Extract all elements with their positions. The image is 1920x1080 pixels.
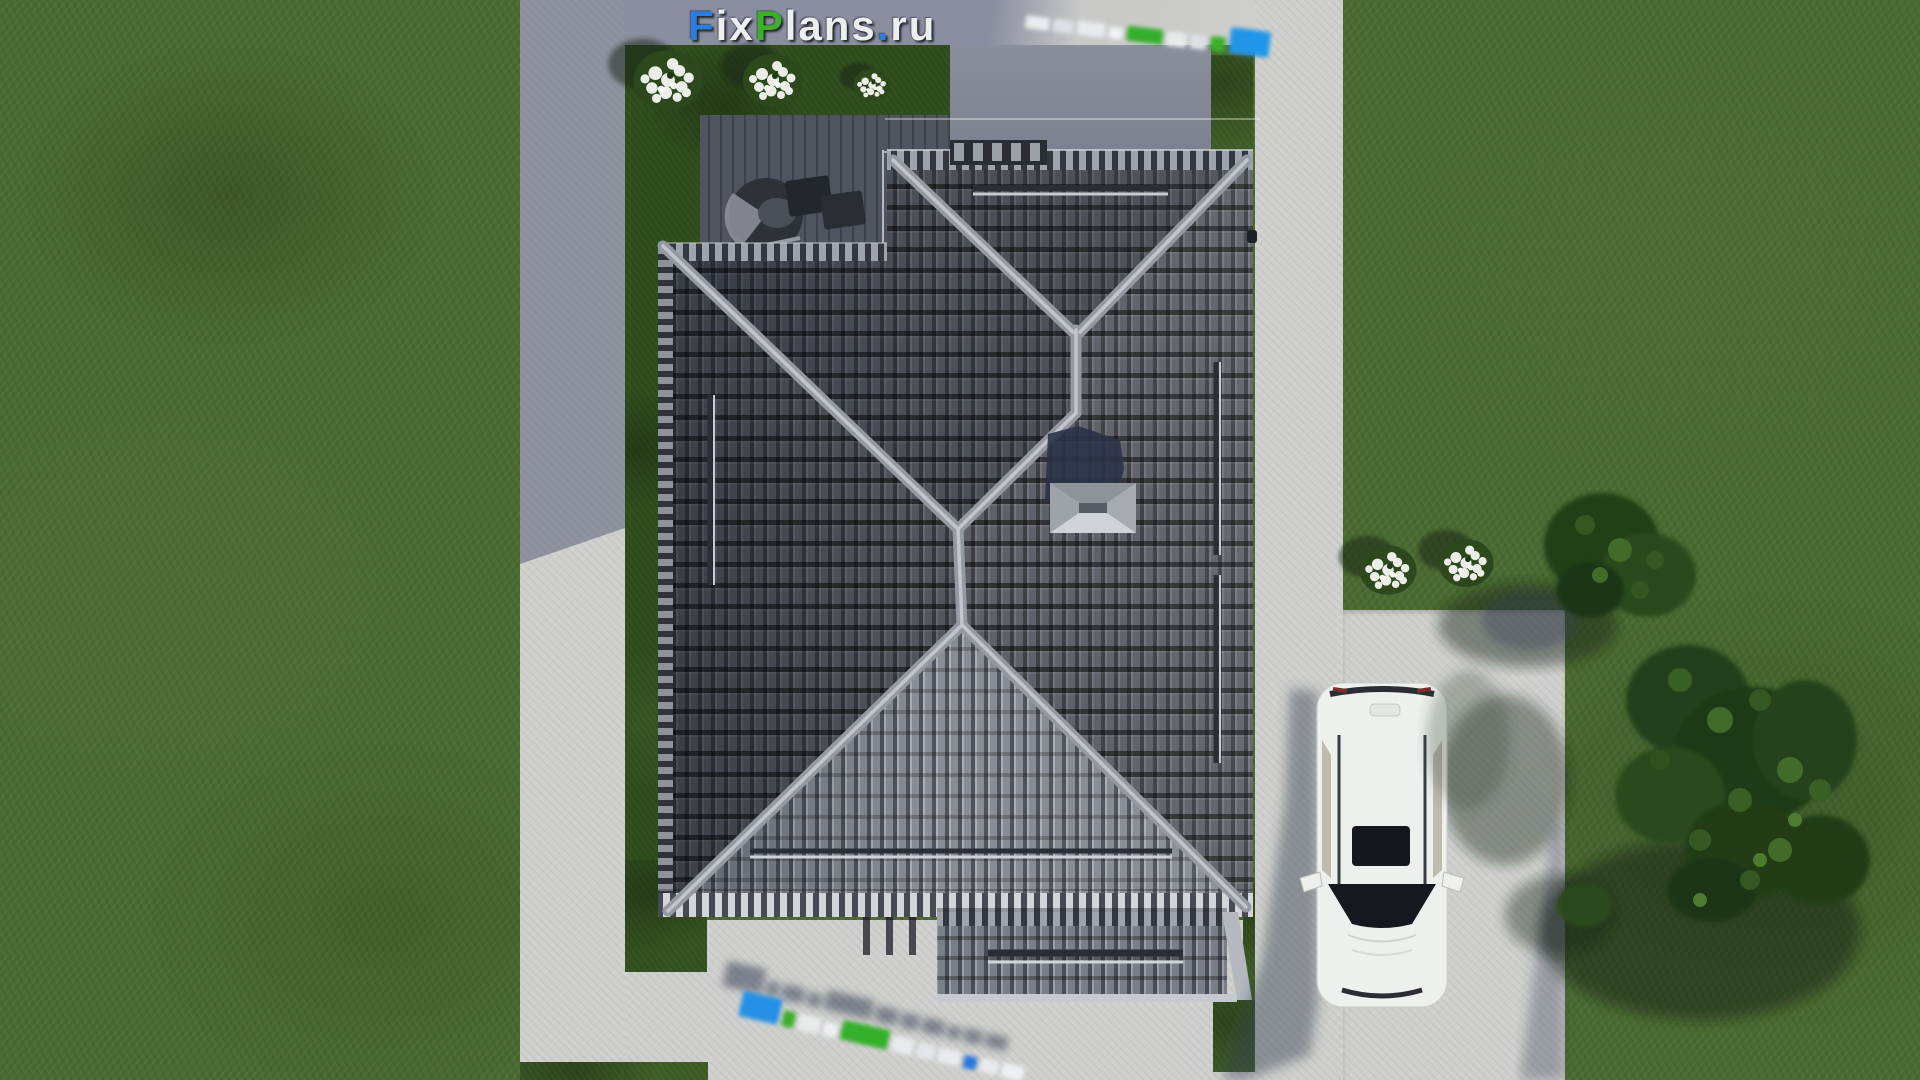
guide-line [885, 118, 1260, 120]
watermark-block [979, 1058, 1000, 1076]
aerial-house-render: FixPlans.ru [0, 0, 1920, 1080]
watermark-block [890, 1035, 915, 1056]
watermark-block [1228, 27, 1271, 58]
car-left-glass [1322, 740, 1331, 878]
downspout [1247, 230, 1257, 243]
watermark-block [781, 1010, 796, 1028]
eave-north [887, 150, 1253, 170]
deck-seat [820, 190, 866, 230]
porch-roof [937, 908, 1252, 1002]
logo-seg: . [877, 2, 891, 49]
watermark-block [962, 1055, 978, 1071]
logo-seg: F [688, 2, 716, 49]
trees [1544, 493, 1870, 927]
watermark-block [839, 1020, 890, 1050]
render-vector-layer [0, 0, 1920, 1080]
logo-seg: lans [785, 2, 877, 49]
watermark-block [1209, 36, 1226, 53]
watermark-block [1190, 34, 1208, 50]
watermark-block [915, 1042, 936, 1061]
watermark-block [1108, 26, 1123, 40]
watermark-block [1053, 19, 1074, 34]
watermark-block [937, 1047, 962, 1067]
car [1222, 670, 1510, 1080]
logo-seg: ix [716, 2, 755, 49]
watermark-block [1025, 15, 1050, 31]
fixplans-logo: FixPlans.ru [688, 2, 936, 50]
entry-step-shadows [863, 917, 916, 955]
eave-west [658, 243, 673, 915]
house-roof [658, 140, 1257, 917]
eave-north-left [658, 243, 887, 261]
watermark-block [1166, 31, 1188, 47]
sunroof [1352, 826, 1410, 866]
logo-seg: P [755, 2, 785, 49]
roof-vent-chimney [950, 140, 1047, 165]
watermark-block [797, 1014, 822, 1035]
watermark-block [1076, 20, 1105, 37]
watermark-block [1126, 26, 1164, 45]
watermark-block [1000, 1063, 1025, 1080]
logo-seg: ru [890, 2, 936, 49]
watermark-block [822, 1021, 839, 1038]
